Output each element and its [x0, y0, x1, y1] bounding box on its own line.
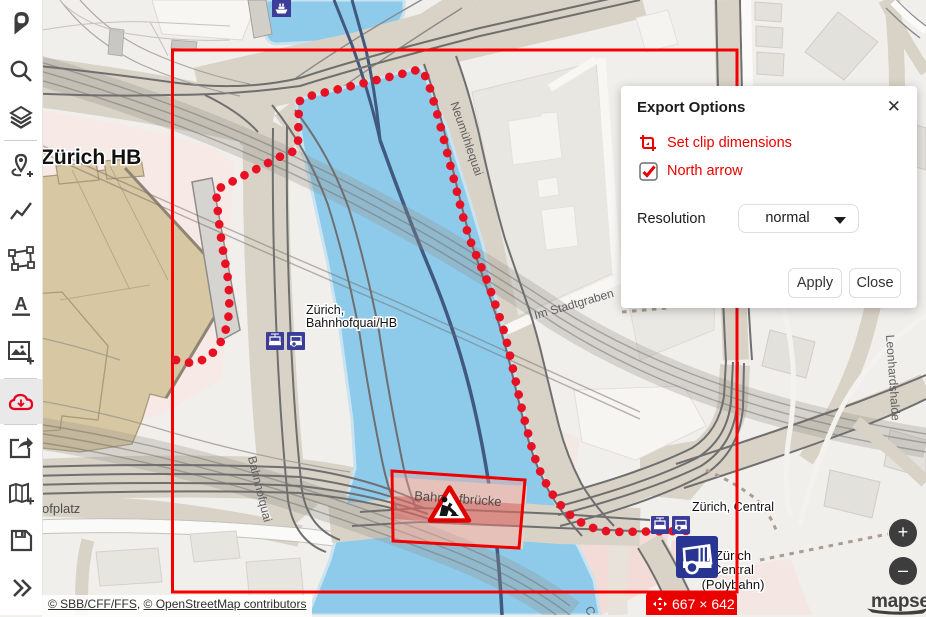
- svg-text:Bahnhofquai/HB: Bahnhofquai/HB: [306, 316, 397, 330]
- svg-text:Zürich: Zürich: [715, 548, 751, 563]
- svg-text:Zürich, Central: Zürich, Central: [692, 500, 774, 514]
- svg-text:Zürich HB: Zürich HB: [41, 146, 141, 169]
- svg-text:ofplatz: ofplatz: [42, 501, 80, 516]
- svg-text:Central: Central: [712, 562, 754, 577]
- svg-text:A: A: [15, 294, 28, 314]
- svg-text:(Polybahn): (Polybahn): [702, 577, 765, 592]
- svg-text:Zürich,: Zürich,: [306, 303, 344, 317]
